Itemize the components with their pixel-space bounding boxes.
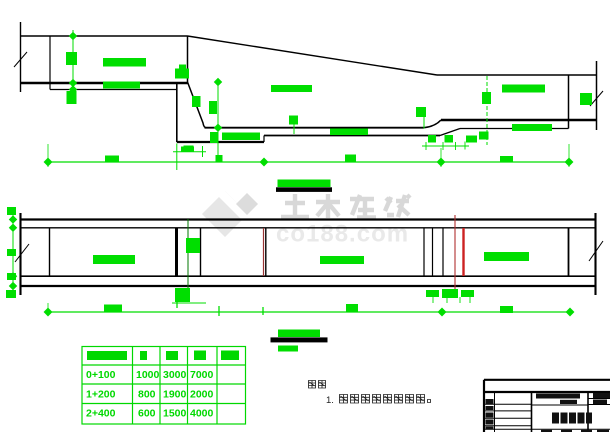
svg-text:4000: 4000 xyxy=(190,408,214,420)
svg-text:1.: 1. xyxy=(326,395,334,406)
svg-text:1+200: 1+200 xyxy=(86,389,116,401)
svg-text:2+400: 2+400 xyxy=(86,408,116,420)
svg-text:1900: 1900 xyxy=(163,389,187,401)
svg-text:1500: 1500 xyxy=(163,408,187,420)
svg-text:0+100: 0+100 xyxy=(86,369,116,381)
svg-text:7000: 7000 xyxy=(190,369,214,381)
svg-text:co188.com: co188.com xyxy=(276,221,409,248)
svg-text:800: 800 xyxy=(138,389,156,401)
svg-text:600: 600 xyxy=(138,408,156,420)
svg-text:3000: 3000 xyxy=(163,369,187,381)
svg-text:1000: 1000 xyxy=(136,369,160,381)
svg-text:2000: 2000 xyxy=(190,389,214,401)
